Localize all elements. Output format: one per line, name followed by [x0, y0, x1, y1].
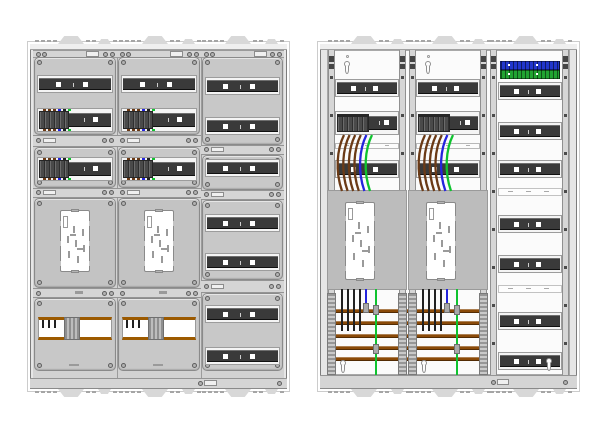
knockout-dash	[92, 391, 96, 393]
screw	[204, 192, 209, 197]
knockout-dash	[202, 40, 206, 42]
screw	[192, 280, 197, 285]
wire-mark	[142, 129, 145, 131]
keyhole-stem	[345, 66, 349, 74]
wire-mark	[137, 178, 140, 180]
knockout-dash	[427, 40, 431, 42]
cabinet-bottom-rail	[30, 378, 287, 389]
screw	[275, 182, 280, 187]
earth-wire	[456, 289, 458, 375]
rail-mark	[379, 121, 380, 125]
plate-mark	[448, 226, 450, 233]
shelf-mark	[544, 191, 549, 192]
plate-tab	[71, 209, 79, 212]
knockout-bump-small	[472, 39, 485, 44]
knockout-dash	[415, 40, 419, 42]
knockout-dash	[385, 391, 389, 393]
rail-mark	[528, 168, 529, 172]
plate-mark	[355, 232, 361, 234]
wire-connector	[444, 303, 450, 313]
din-rail	[207, 120, 278, 132]
knockout-bump-small	[265, 389, 278, 394]
plate-notch	[59, 261, 61, 266]
knockout-dash	[170, 40, 174, 42]
knockout-bump-small	[391, 389, 404, 394]
screw	[275, 60, 280, 65]
rail-mark	[528, 223, 529, 227]
phase-wire	[347, 289, 349, 331]
device-block	[123, 160, 153, 178]
plate-mark	[436, 232, 442, 234]
knockout-dash	[253, 391, 257, 393]
wire-mark	[152, 178, 155, 180]
rail-window	[465, 120, 470, 125]
screw	[37, 60, 42, 65]
meter-tail-wires	[418, 135, 474, 191]
rail-window	[250, 354, 255, 359]
screw	[276, 192, 281, 197]
din-rail	[207, 308, 278, 320]
rail-clip	[329, 56, 334, 62]
plate-tab	[356, 201, 364, 204]
phase-wire	[422, 289, 424, 331]
plate-tab	[356, 278, 364, 281]
screw	[205, 137, 210, 142]
plate-detail	[348, 208, 353, 220]
plate-mark	[161, 256, 163, 263]
rail-window	[83, 82, 88, 87]
fuse-mark	[48, 320, 50, 328]
din-rail	[207, 80, 278, 92]
plate-notch	[59, 221, 61, 226]
plate-detail	[63, 216, 68, 228]
rail-window	[514, 319, 519, 324]
plate-notch	[89, 261, 91, 266]
screw	[102, 291, 107, 296]
terminal-mark	[536, 73, 538, 75]
fuse-mark	[54, 320, 56, 328]
pilot-hole	[427, 55, 430, 58]
din-rail	[500, 125, 560, 137]
knockout-bump-small	[182, 389, 195, 394]
screw	[121, 150, 126, 155]
rail-window	[514, 262, 519, 267]
knockout-dash	[35, 391, 39, 393]
knockout-dash	[508, 40, 512, 42]
din-rail	[337, 82, 397, 94]
screw	[192, 150, 197, 155]
plate-mark	[73, 226, 75, 233]
knockout-bump	[225, 389, 251, 397]
knockout-dash	[541, 391, 545, 393]
knockout-dash	[170, 391, 174, 393]
wire-mark	[142, 178, 145, 180]
knockout-dash	[41, 391, 45, 393]
screw	[36, 291, 41, 296]
knockout-dash	[379, 40, 383, 42]
rail-window	[250, 260, 255, 265]
knockout-dash	[202, 391, 206, 393]
knockout-dash	[137, 391, 141, 393]
knockout-dash	[86, 40, 90, 42]
knockout-dash	[496, 40, 500, 42]
knockout-dash	[409, 40, 413, 42]
knockout-dash	[541, 40, 545, 42]
din-rail	[500, 218, 560, 230]
shelf-mark	[526, 191, 531, 192]
plate-mark	[449, 246, 451, 253]
rail-mark	[365, 87, 366, 91]
wire-mark	[147, 178, 150, 180]
din-rail	[123, 78, 195, 90]
plate-notch	[173, 261, 175, 266]
plate-notch	[425, 266, 427, 271]
wire-mark	[68, 129, 71, 131]
plate-notch	[59, 241, 61, 246]
phase-wire	[341, 289, 343, 331]
rail-window	[250, 166, 255, 171]
plate-mark	[68, 251, 70, 258]
shelf-mark	[508, 288, 513, 289]
knockout-dash	[280, 40, 284, 42]
knockout-dash	[280, 391, 284, 393]
knockout-bump-small	[553, 389, 566, 394]
din-rail	[207, 162, 278, 174]
phase-wire	[434, 289, 436, 331]
knockout-dash	[137, 40, 141, 42]
din-rail	[207, 350, 278, 362]
knockout-dash	[47, 40, 51, 42]
knockout-dash	[35, 40, 39, 42]
terminal-mark	[508, 64, 510, 66]
knockout-dash	[53, 391, 57, 393]
knockout-dash	[176, 40, 180, 42]
knockout-dash	[47, 391, 51, 393]
rail-mark	[240, 222, 241, 226]
knockout-dash	[197, 40, 201, 42]
wire-connector	[373, 344, 379, 354]
rail-mark	[528, 263, 529, 267]
plate-notch	[344, 241, 346, 246]
keyhole-stem	[547, 363, 551, 371]
plate-mark	[67, 236, 69, 243]
rail-clip-track	[492, 76, 495, 372]
rail-mark	[168, 118, 169, 122]
fuse-mark	[132, 320, 134, 328]
device-block	[39, 160, 69, 178]
knockout-dash	[508, 391, 512, 393]
screw	[192, 363, 197, 368]
knockout-dash	[346, 391, 350, 393]
knockout-dash	[568, 391, 572, 393]
knockout-bump	[58, 389, 84, 397]
knockout-dash	[547, 40, 551, 42]
screw	[102, 190, 107, 195]
cabinet-bottom-rail	[320, 375, 577, 389]
knockout-dash	[346, 40, 350, 42]
screw	[108, 280, 113, 285]
screw	[186, 138, 191, 143]
plate-notch	[89, 241, 91, 246]
plate-mark	[70, 234, 76, 236]
fuse-mark	[126, 320, 128, 328]
screw	[205, 272, 210, 277]
device-block	[39, 111, 69, 129]
latch-slot	[127, 190, 140, 195]
phase-wire	[359, 289, 361, 331]
screw	[102, 138, 107, 143]
wire-connector	[454, 344, 460, 354]
rail-window	[223, 221, 228, 226]
wire-mark	[53, 178, 56, 180]
wire-mark	[152, 129, 155, 131]
rail-mark	[240, 125, 241, 129]
plate-mark	[83, 245, 85, 252]
screw	[109, 190, 114, 195]
plate-mark	[433, 235, 435, 242]
screw	[186, 190, 191, 195]
rail-window	[223, 260, 228, 265]
rail-mark	[240, 261, 241, 265]
fuse-mark	[42, 320, 44, 328]
knockout-dash	[421, 391, 425, 393]
din-rail	[153, 162, 195, 176]
rail-clip	[491, 56, 496, 62]
terminal-mark	[508, 73, 510, 75]
rail-window	[140, 82, 145, 87]
rail-window	[454, 86, 459, 91]
din-rail	[500, 258, 560, 270]
phase-wire	[428, 289, 430, 331]
knockout-dash	[379, 391, 383, 393]
wire-connector	[373, 305, 379, 315]
wire-mark	[58, 129, 61, 131]
screw	[108, 363, 113, 368]
wire-mark	[137, 129, 140, 131]
meter-tail-wires	[337, 135, 393, 191]
din-rail	[500, 85, 560, 97]
screw	[108, 201, 113, 206]
rail-mark	[240, 355, 241, 359]
brand-mark	[69, 364, 79, 366]
knockout-dash	[220, 40, 224, 42]
knockout-bump	[432, 36, 458, 44]
knockout-bump	[513, 36, 539, 44]
knockout-dash	[131, 391, 135, 393]
screw	[205, 182, 210, 187]
knockout-dash	[460, 391, 464, 393]
knockout-dash	[502, 391, 506, 393]
knockout-bump-small	[98, 39, 111, 44]
brand-mark	[153, 364, 163, 366]
screw	[121, 201, 126, 206]
knockout-dash	[490, 391, 494, 393]
plate-notch	[374, 241, 376, 246]
rail-mark	[84, 118, 85, 122]
screw	[205, 60, 210, 65]
rail-window	[250, 221, 255, 226]
screw	[109, 138, 114, 143]
knockout-dash	[259, 391, 263, 393]
knockout-dash	[328, 40, 332, 42]
plate-mark	[166, 229, 168, 236]
rail-window	[223, 354, 228, 359]
rail-clip	[563, 56, 568, 62]
plate-notch	[374, 266, 376, 271]
plate-tab	[155, 209, 163, 212]
rail-window	[536, 129, 541, 134]
knockout-dash	[466, 391, 470, 393]
wire-mark	[63, 178, 66, 180]
wire-mark	[58, 178, 61, 180]
knockout-bump	[58, 36, 84, 44]
knockout-dash	[125, 391, 129, 393]
latch-slot	[43, 138, 56, 143]
plate-tab	[155, 270, 163, 273]
latch-slot	[211, 192, 224, 197]
rail-window	[177, 166, 182, 171]
knockout-bump	[225, 36, 251, 44]
latch-slot	[497, 379, 509, 385]
knockout-dash	[92, 40, 96, 42]
plate-mark	[167, 245, 169, 252]
knockout-dash	[490, 40, 494, 42]
wire-mark	[63, 129, 66, 131]
rail-clip	[410, 64, 415, 69]
rail-clip	[491, 64, 496, 69]
screw	[186, 291, 191, 296]
keyhole-stem	[426, 66, 430, 74]
screw	[37, 201, 42, 206]
screw	[109, 291, 114, 296]
pilot-hole	[346, 55, 349, 58]
knockout-dash	[119, 40, 123, 42]
knockout-dash	[340, 391, 344, 393]
plate-mark	[443, 250, 449, 252]
plate-notch	[143, 261, 145, 266]
screw	[275, 296, 280, 301]
screw	[205, 203, 210, 208]
screw	[563, 380, 568, 385]
knockout-bump	[142, 389, 168, 397]
rail-window	[514, 359, 519, 364]
screw	[108, 301, 113, 306]
knockout-dash	[496, 391, 500, 393]
knockout-dash	[334, 40, 338, 42]
label-mark	[75, 291, 83, 294]
plate-notch	[425, 241, 427, 246]
rail-window	[223, 166, 228, 171]
shelf-mark	[508, 191, 513, 192]
knockout-bump	[351, 389, 377, 397]
rail-mark	[168, 167, 169, 171]
rail-mark	[460, 121, 461, 125]
phase-wire	[353, 289, 355, 331]
screw	[120, 291, 125, 296]
screw	[192, 301, 197, 306]
shelf-mark	[526, 288, 531, 289]
screw	[36, 138, 41, 143]
screw	[121, 60, 126, 65]
busbar-support	[408, 293, 417, 375]
screw	[193, 190, 198, 195]
knockout-dash	[86, 391, 90, 393]
knockout-bump-small	[472, 389, 485, 394]
knockout-dash	[113, 391, 117, 393]
plate-mark	[161, 248, 167, 250]
din-rail	[500, 315, 560, 327]
plate-mark	[368, 246, 370, 253]
wire-mark	[147, 129, 150, 131]
keyhole-stem	[341, 365, 345, 373]
screw	[275, 272, 280, 277]
rail-clip	[400, 64, 405, 69]
plate-mark	[77, 256, 79, 263]
screw	[36, 190, 41, 195]
din-rail	[418, 82, 478, 94]
rail-window	[93, 117, 98, 122]
plate-notch	[173, 241, 175, 246]
rail-window	[223, 312, 228, 317]
screw	[37, 280, 42, 285]
knockout-dash	[176, 391, 180, 393]
phase-wire	[440, 289, 442, 331]
wire-mark	[132, 178, 135, 180]
din-rail	[153, 113, 195, 127]
plate-notch	[455, 216, 457, 221]
rail-window	[432, 86, 437, 91]
wire-connector	[363, 303, 369, 313]
screw	[277, 381, 282, 386]
knockout-dash	[385, 40, 389, 42]
plate-mark	[352, 235, 354, 242]
rail-window	[223, 84, 228, 89]
screw	[193, 138, 198, 143]
terminal-block	[64, 317, 80, 340]
plate-mark	[362, 260, 364, 267]
latch-slot	[127, 138, 140, 143]
plate-tab	[437, 278, 445, 281]
rail-mark	[528, 360, 529, 364]
screw	[120, 190, 125, 195]
rail-mark	[157, 83, 158, 87]
plate-notch	[89, 221, 91, 226]
plate-mark	[154, 234, 160, 236]
knockout-bump-small	[265, 39, 278, 44]
rail-window	[250, 124, 255, 129]
earth-wire	[375, 289, 377, 375]
screw	[275, 137, 280, 142]
rail-window	[351, 86, 356, 91]
knockout-dash	[197, 391, 201, 393]
din-rail	[39, 78, 111, 90]
screw	[121, 301, 126, 306]
rail-window	[167, 82, 172, 87]
rail-window	[250, 312, 255, 317]
rail-mark	[528, 130, 529, 134]
knockout-dash	[415, 391, 419, 393]
knockout-dash	[113, 40, 117, 42]
plate-mark	[77, 248, 83, 250]
rail-mark	[240, 167, 241, 171]
screw	[204, 284, 209, 289]
rail-window	[514, 89, 519, 94]
tail-wire	[366, 135, 372, 191]
screw	[204, 147, 209, 152]
plate-notch	[173, 221, 175, 226]
plate-detail	[429, 208, 434, 220]
plate-mark	[441, 240, 443, 247]
